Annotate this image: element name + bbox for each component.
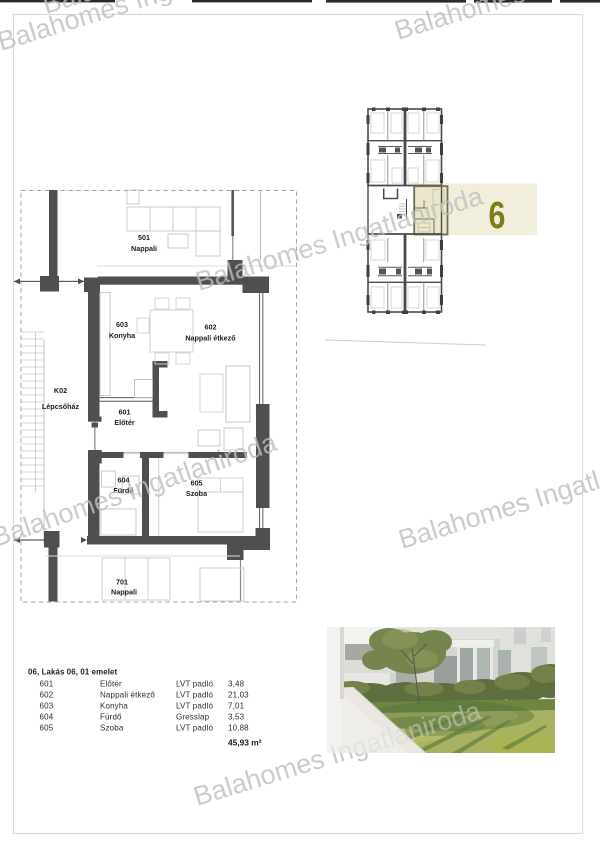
svg-text:LVT padló: LVT padló — [176, 691, 213, 700]
svg-text:Szoba: Szoba — [100, 724, 124, 733]
svg-text:Nappali étkező: Nappali étkező — [100, 691, 155, 700]
svg-text:3,53: 3,53 — [228, 713, 245, 722]
svg-text:Konyha: Konyha — [100, 702, 128, 711]
svg-text:6: 6 — [489, 195, 506, 237]
svg-text:Nappali étkező: Nappali étkező — [185, 334, 236, 343]
svg-text:Előtér: Előtér — [114, 418, 135, 427]
svg-text:LVT padló: LVT padló — [176, 702, 213, 711]
svg-text:LVT padló: LVT padló — [176, 724, 213, 733]
svg-text:601: 601 — [119, 408, 131, 417]
svg-text:Nappali: Nappali — [131, 244, 157, 253]
svg-text:LVT padló: LVT padló — [176, 680, 213, 689]
svg-text:602: 602 — [40, 691, 54, 700]
svg-text:701: 701 — [116, 578, 128, 587]
svg-text:Gresslap: Gresslap — [176, 713, 210, 722]
svg-text:Előtér: Előtér — [100, 680, 122, 689]
svg-text:Szoba: Szoba — [186, 489, 208, 498]
svg-text:Konyha: Konyha — [109, 331, 136, 340]
svg-text:602: 602 — [205, 323, 217, 332]
svg-text:10,88: 10,88 — [228, 724, 249, 733]
svg-text:21,03: 21,03 — [228, 691, 249, 700]
svg-text:501: 501 — [138, 233, 150, 242]
svg-text:Fürdő: Fürdő — [100, 713, 122, 722]
svg-text:K02: K02 — [54, 386, 67, 395]
svg-text:601: 601 — [40, 680, 54, 689]
svg-text:06, Lakás 06, 01 emelet: 06, Lakás 06, 01 emelet — [28, 668, 118, 677]
svg-text:604: 604 — [40, 713, 54, 722]
svg-text:45,93 m²: 45,93 m² — [228, 738, 262, 748]
svg-text:603: 603 — [40, 702, 54, 711]
svg-text:7,01: 7,01 — [228, 702, 245, 711]
svg-text:605: 605 — [40, 724, 54, 733]
svg-text:Nappali: Nappali — [111, 588, 137, 597]
svg-text:Lépcsőház: Lépcsőház — [42, 402, 80, 411]
svg-text:3,48: 3,48 — [228, 680, 245, 689]
svg-text:603: 603 — [116, 320, 128, 329]
